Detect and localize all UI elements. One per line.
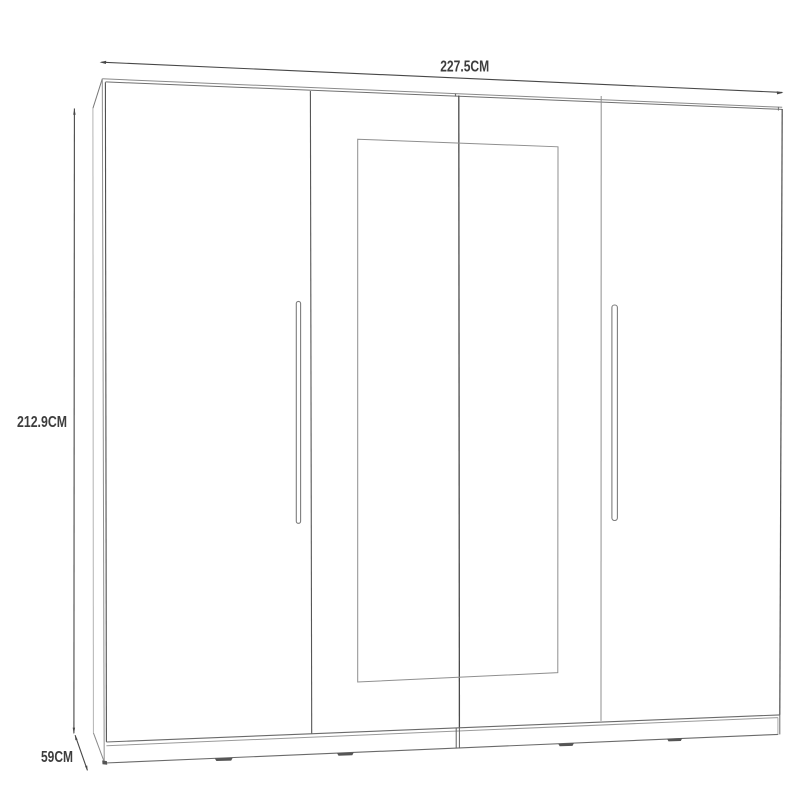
- svg-text:227.5CM: 227.5CM: [440, 58, 489, 75]
- svg-text:59CM: 59CM: [41, 749, 73, 766]
- svg-text:212.9CM: 212.9CM: [17, 414, 67, 431]
